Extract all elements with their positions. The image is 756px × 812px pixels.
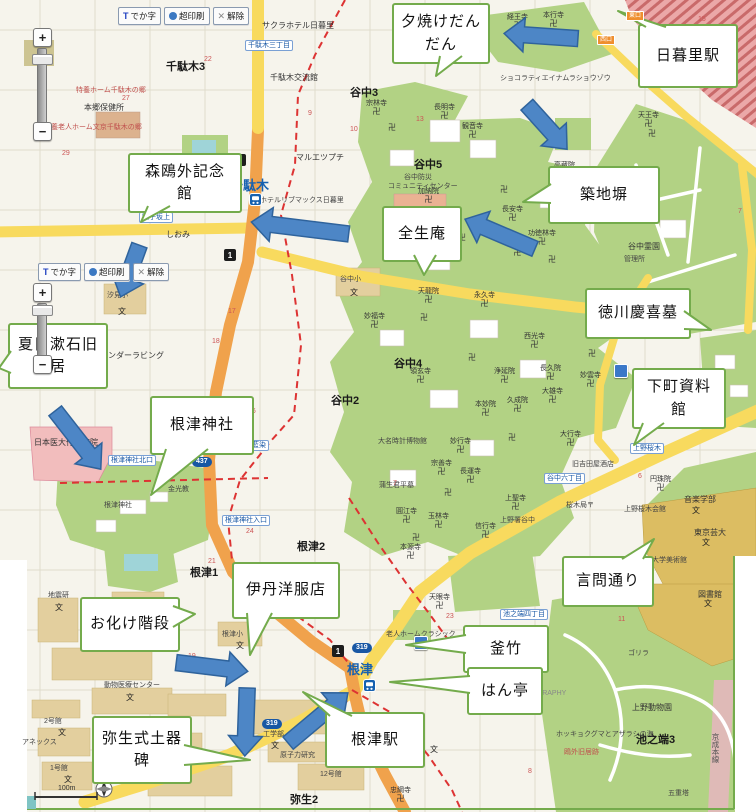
zoom-in-button[interactable]: + (33, 28, 52, 47)
toolbar-button-label: でか字 (131, 10, 157, 22)
toolbar-button-label: 超印刷 (179, 10, 205, 22)
toolbar-button-label: でか字 (51, 266, 77, 278)
map-canvas[interactable]: 千駄木3谷中3谷中5谷中2谷中4根津2根津1弥生2池之端3サクラホテル日暮里千駄… (0, 0, 756, 812)
station-exit-tag: 西口 (597, 35, 615, 45)
dekaji-button[interactable]: Tでか字 (118, 7, 161, 25)
dekaji-button[interactable]: Tでか字 (38, 263, 81, 281)
clear-button[interactable]: ✕解除 (213, 7, 250, 25)
zoom-slider-handle[interactable] (32, 54, 53, 65)
zoom-out-button[interactable]: − (33, 122, 52, 141)
toolbar-button-label: 超印刷 (99, 266, 125, 278)
print-button[interactable]: 超印刷 (164, 7, 210, 25)
close-icon: ✕ (218, 11, 226, 22)
station-exit-tag: 東口 (626, 11, 644, 21)
map-toolbar: Tでか字超印刷✕解除 (38, 263, 169, 281)
zoom-in-button[interactable]: + (33, 283, 52, 302)
print-button[interactable]: 超印刷 (84, 263, 130, 281)
map-toolbar: Tでか字超印刷✕解除 (118, 7, 249, 25)
t-icon: T (43, 267, 49, 277)
toolbar-button-label: 解除 (227, 10, 244, 22)
printer-icon (169, 12, 177, 20)
clear-button[interactable]: ✕解除 (133, 263, 170, 281)
scale-label: 100m (58, 785, 76, 792)
close-icon: ✕ (138, 267, 146, 278)
toolbar-button-label: 解除 (147, 266, 164, 278)
printer-icon (89, 268, 97, 276)
zoom-out-button[interactable]: − (33, 355, 52, 374)
zoom-slider-handle[interactable] (32, 305, 53, 316)
t-icon: T (123, 11, 129, 21)
